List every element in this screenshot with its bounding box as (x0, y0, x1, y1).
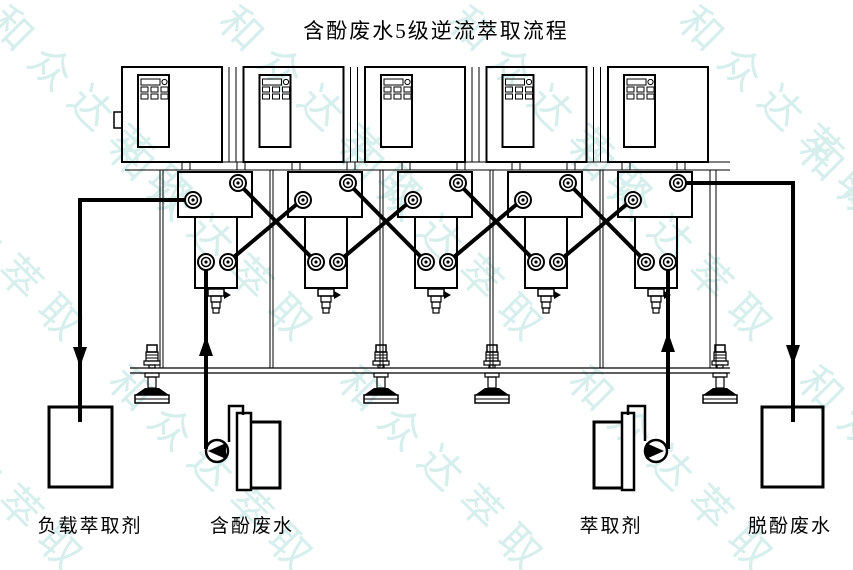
control-box (122, 67, 236, 162)
tank-extractant (594, 413, 634, 490)
port-fitting (670, 175, 686, 191)
control-box (608, 67, 708, 162)
pump-icon (645, 440, 667, 462)
leveling-foot (475, 345, 509, 403)
label-dephenolized-wastewater: 脱酚废水 (748, 511, 832, 538)
port-fitting (295, 192, 311, 208)
port-fitting (440, 254, 456, 270)
port-fitting (550, 254, 566, 270)
flow-arrow-up (661, 332, 675, 352)
port-fitting (340, 175, 356, 191)
port-fitting (418, 254, 434, 270)
flow-lines (80, 183, 793, 449)
drawing-canvas: 和众达萃取和众达萃取和众达萃取和众达萃取和众达萃取和众达萃取和众达萃取和众达萃取… (0, 0, 853, 570)
flow-arrow-down (786, 345, 800, 365)
control-box-side-tab (114, 112, 122, 128)
port-fitting (330, 254, 346, 270)
flow-arrow-down (73, 347, 87, 367)
leveling-foot (703, 345, 737, 403)
tank-phenol-wastewater (237, 413, 280, 490)
port-fitting (638, 254, 654, 270)
port-fitting (660, 254, 676, 270)
port-fitting (450, 175, 466, 191)
port-fitting (405, 192, 421, 208)
port-fitting (220, 254, 236, 270)
control-box (365, 67, 479, 162)
leveling-foot (135, 345, 169, 403)
process-flow-diagram (0, 0, 853, 570)
flow-arrow-up (199, 336, 213, 356)
control-box (244, 67, 358, 162)
page-title: 含酚废水5级逆流萃取流程 (303, 15, 569, 45)
label-phenol-wastewater: 含酚废水 (210, 511, 294, 538)
label-extractant: 萃取剂 (579, 511, 642, 538)
port-fitting (560, 175, 576, 191)
control-box (487, 67, 601, 162)
label-loaded-extractant: 负载萃取剂 (37, 511, 142, 538)
port-fitting (185, 192, 201, 208)
port-fitting (528, 254, 544, 270)
port-fitting (625, 192, 641, 208)
leveling-foot (364, 345, 398, 403)
port-fitting (515, 192, 531, 208)
port-fitting (198, 254, 214, 270)
port-fitting (230, 175, 246, 191)
port-fitting (308, 254, 324, 270)
pump-icon (206, 440, 228, 462)
